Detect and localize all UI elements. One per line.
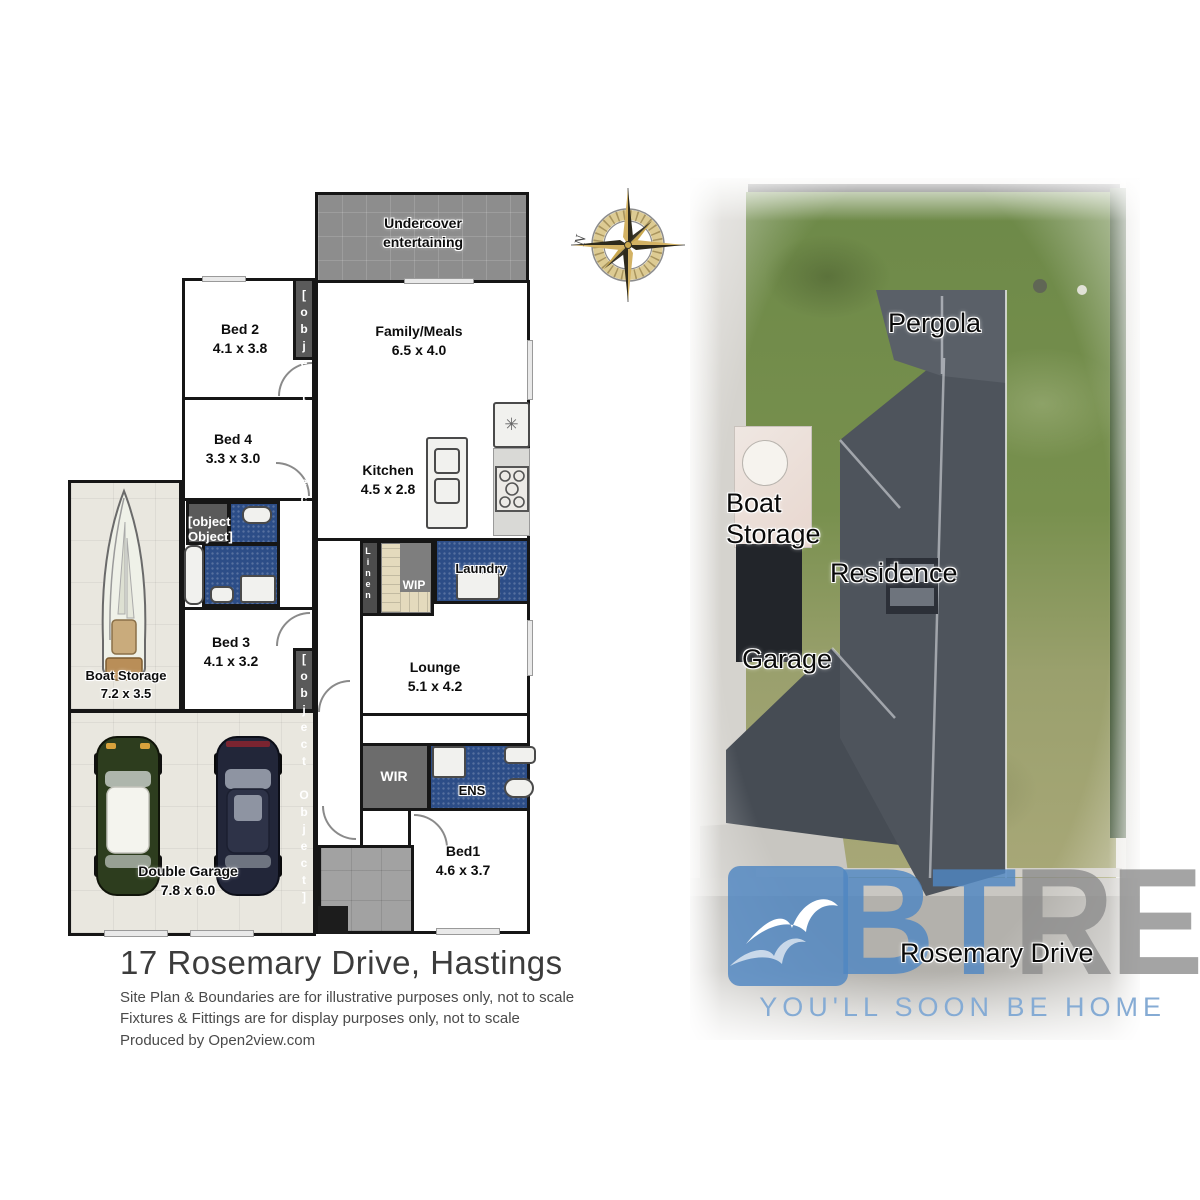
label-kitchen: Kitchen4.5 x 2.8: [346, 461, 430, 499]
wall-bed2-bed4: [182, 397, 315, 400]
window-family: [404, 278, 474, 284]
address-block: 17 Rosemary Drive, Hastings Site Plan & …: [120, 944, 574, 1051]
label-boat-storage: Boat Storage7.2 x 3.5: [76, 667, 176, 702]
cooktop-icon: [495, 466, 529, 512]
island-sink-1: [434, 448, 460, 474]
label-bed3: Bed 34.1 x 3.2: [189, 633, 273, 671]
family-name: Family/Meals: [375, 322, 462, 341]
disclaimer-line-3: Produced by Open2view.com: [120, 1030, 574, 1051]
garage-text: Garage: [742, 644, 832, 674]
garage-dims: 7.8 x 6.0: [161, 881, 216, 900]
fridge-glyph: ✳: [504, 415, 518, 435]
shower-icon: [240, 575, 276, 603]
aerial-label-garage: Garage: [742, 644, 832, 675]
linen-name: Linen: [363, 546, 373, 601]
island-sink-2: [434, 478, 460, 504]
floor-plan: ✳: [64, 190, 536, 938]
bed4-name: Bed 4: [214, 430, 252, 449]
residence-text: Residence: [830, 558, 958, 588]
label-wir: WIR: [366, 768, 422, 784]
label-undercover: Undercover entertaining: [360, 214, 486, 252]
bathtub-icon: [184, 545, 204, 605]
logo-tagline: YOU'LL SOON BE HOME: [759, 992, 1166, 1023]
logo-bt: BT: [834, 837, 1013, 1007]
kitchen-name: Kitchen: [362, 461, 413, 480]
compass-north-label: N: [572, 233, 590, 248]
window-family-east: [527, 340, 533, 400]
property-address-title: 17 Rosemary Drive, Hastings: [120, 944, 574, 982]
bed1-name: Bed1: [446, 842, 480, 861]
window-garage-door-1: [104, 930, 168, 937]
label-bir-bed2: [object Object]: [297, 288, 311, 543]
disclaimer-lines: Site Plan & Boundaries are for illustrat…: [120, 987, 574, 1051]
entry-step: [318, 906, 348, 934]
street-name-text: Rosemary Drive: [900, 938, 1094, 968]
aerial-label-pergola: Pergola: [888, 308, 981, 339]
bed2-dims: 4.1 x 3.8: [213, 339, 268, 358]
fridge-icon: ✳: [493, 402, 530, 448]
label-lounge: Lounge5.1 x 4.2: [393, 658, 477, 696]
window-bed2: [202, 276, 246, 282]
disclaimer-line-2: Fixtures & Fittings are for display purp…: [120, 1008, 574, 1029]
label-ens: ENS: [448, 782, 496, 800]
label-linen: Linen: [363, 546, 373, 601]
boat-storage-name: Boat Storage: [86, 667, 167, 685]
window-garage-door-2: [190, 930, 254, 937]
label-laundry: Laundry: [442, 560, 520, 578]
kitchen-dims: 4.5 x 2.8: [361, 480, 416, 499]
bath-sink-icon: [210, 586, 234, 603]
label-bir-bed4: [object Object]: [188, 514, 228, 544]
boat-storage-text: Boat Storage: [726, 488, 821, 549]
ens-name: ENS: [459, 782, 486, 800]
ens-sink-icon: [504, 746, 536, 764]
bed1-dims: 4.6 x 3.7: [436, 861, 491, 880]
wir-name: WIR: [380, 768, 407, 784]
label-bed4: Bed 43.3 x 3.0: [191, 430, 275, 468]
aerial-label-boat-storage: Boat Storage: [726, 488, 836, 550]
bed3-dims: 4.1 x 3.2: [204, 652, 259, 671]
label-family: Family/Meals6.5 x 4.0: [364, 322, 474, 360]
pergola-text: Pergola: [888, 308, 981, 338]
bir3-name: [object Object]: [297, 652, 311, 907]
bed3-name: Bed 3: [212, 633, 250, 652]
ens-toilet-icon: [504, 778, 534, 798]
label-bir-bed3: [object Object]: [297, 652, 311, 907]
logo-re: RE: [1013, 837, 1200, 1007]
street-name-label: Rosemary Drive: [900, 938, 1094, 969]
boat-storage-dims: 7.2 x 3.5: [101, 685, 152, 703]
wall-bath-bed3: [182, 607, 315, 610]
bir4-name: [object Object]: [188, 514, 233, 544]
wip-name: WIP: [403, 578, 426, 592]
bir2-name: [object Object]: [297, 288, 311, 543]
garage-name: Double Garage: [138, 862, 238, 881]
wall-lounge-south: [360, 713, 530, 716]
disclaimer-line-1: Site Plan & Boundaries are for illustrat…: [120, 987, 574, 1008]
label-garage: Double Garage7.8 x 6.0: [126, 862, 250, 900]
lounge-dims: 5.1 x 4.2: [408, 677, 463, 696]
laundry-name: Laundry: [455, 560, 506, 578]
family-dims: 6.5 x 4.0: [392, 341, 447, 360]
bed2-name: Bed 2: [221, 320, 259, 339]
logo-bird-mark: [728, 866, 848, 986]
window-bed1: [436, 928, 500, 935]
compass-rose: N: [568, 185, 688, 305]
label-wip: WIP: [392, 578, 436, 592]
label-bed1: Bed14.6 x 3.7: [421, 842, 505, 880]
logo-letters: BTRE: [834, 846, 1200, 998]
wip-pantry-shelves-2: [400, 592, 430, 612]
label-bed2: Bed 24.1 x 3.8: [198, 320, 282, 358]
toilet-icon: [242, 506, 272, 524]
ens-shower-icon: [432, 746, 466, 778]
undercover-name: Undercover entertaining: [360, 214, 486, 252]
window-lounge: [527, 620, 533, 676]
bed4-dims: 3.3 x 3.0: [206, 449, 261, 468]
aerial-label-residence: Residence: [830, 558, 958, 589]
lounge-name: Lounge: [410, 658, 461, 677]
